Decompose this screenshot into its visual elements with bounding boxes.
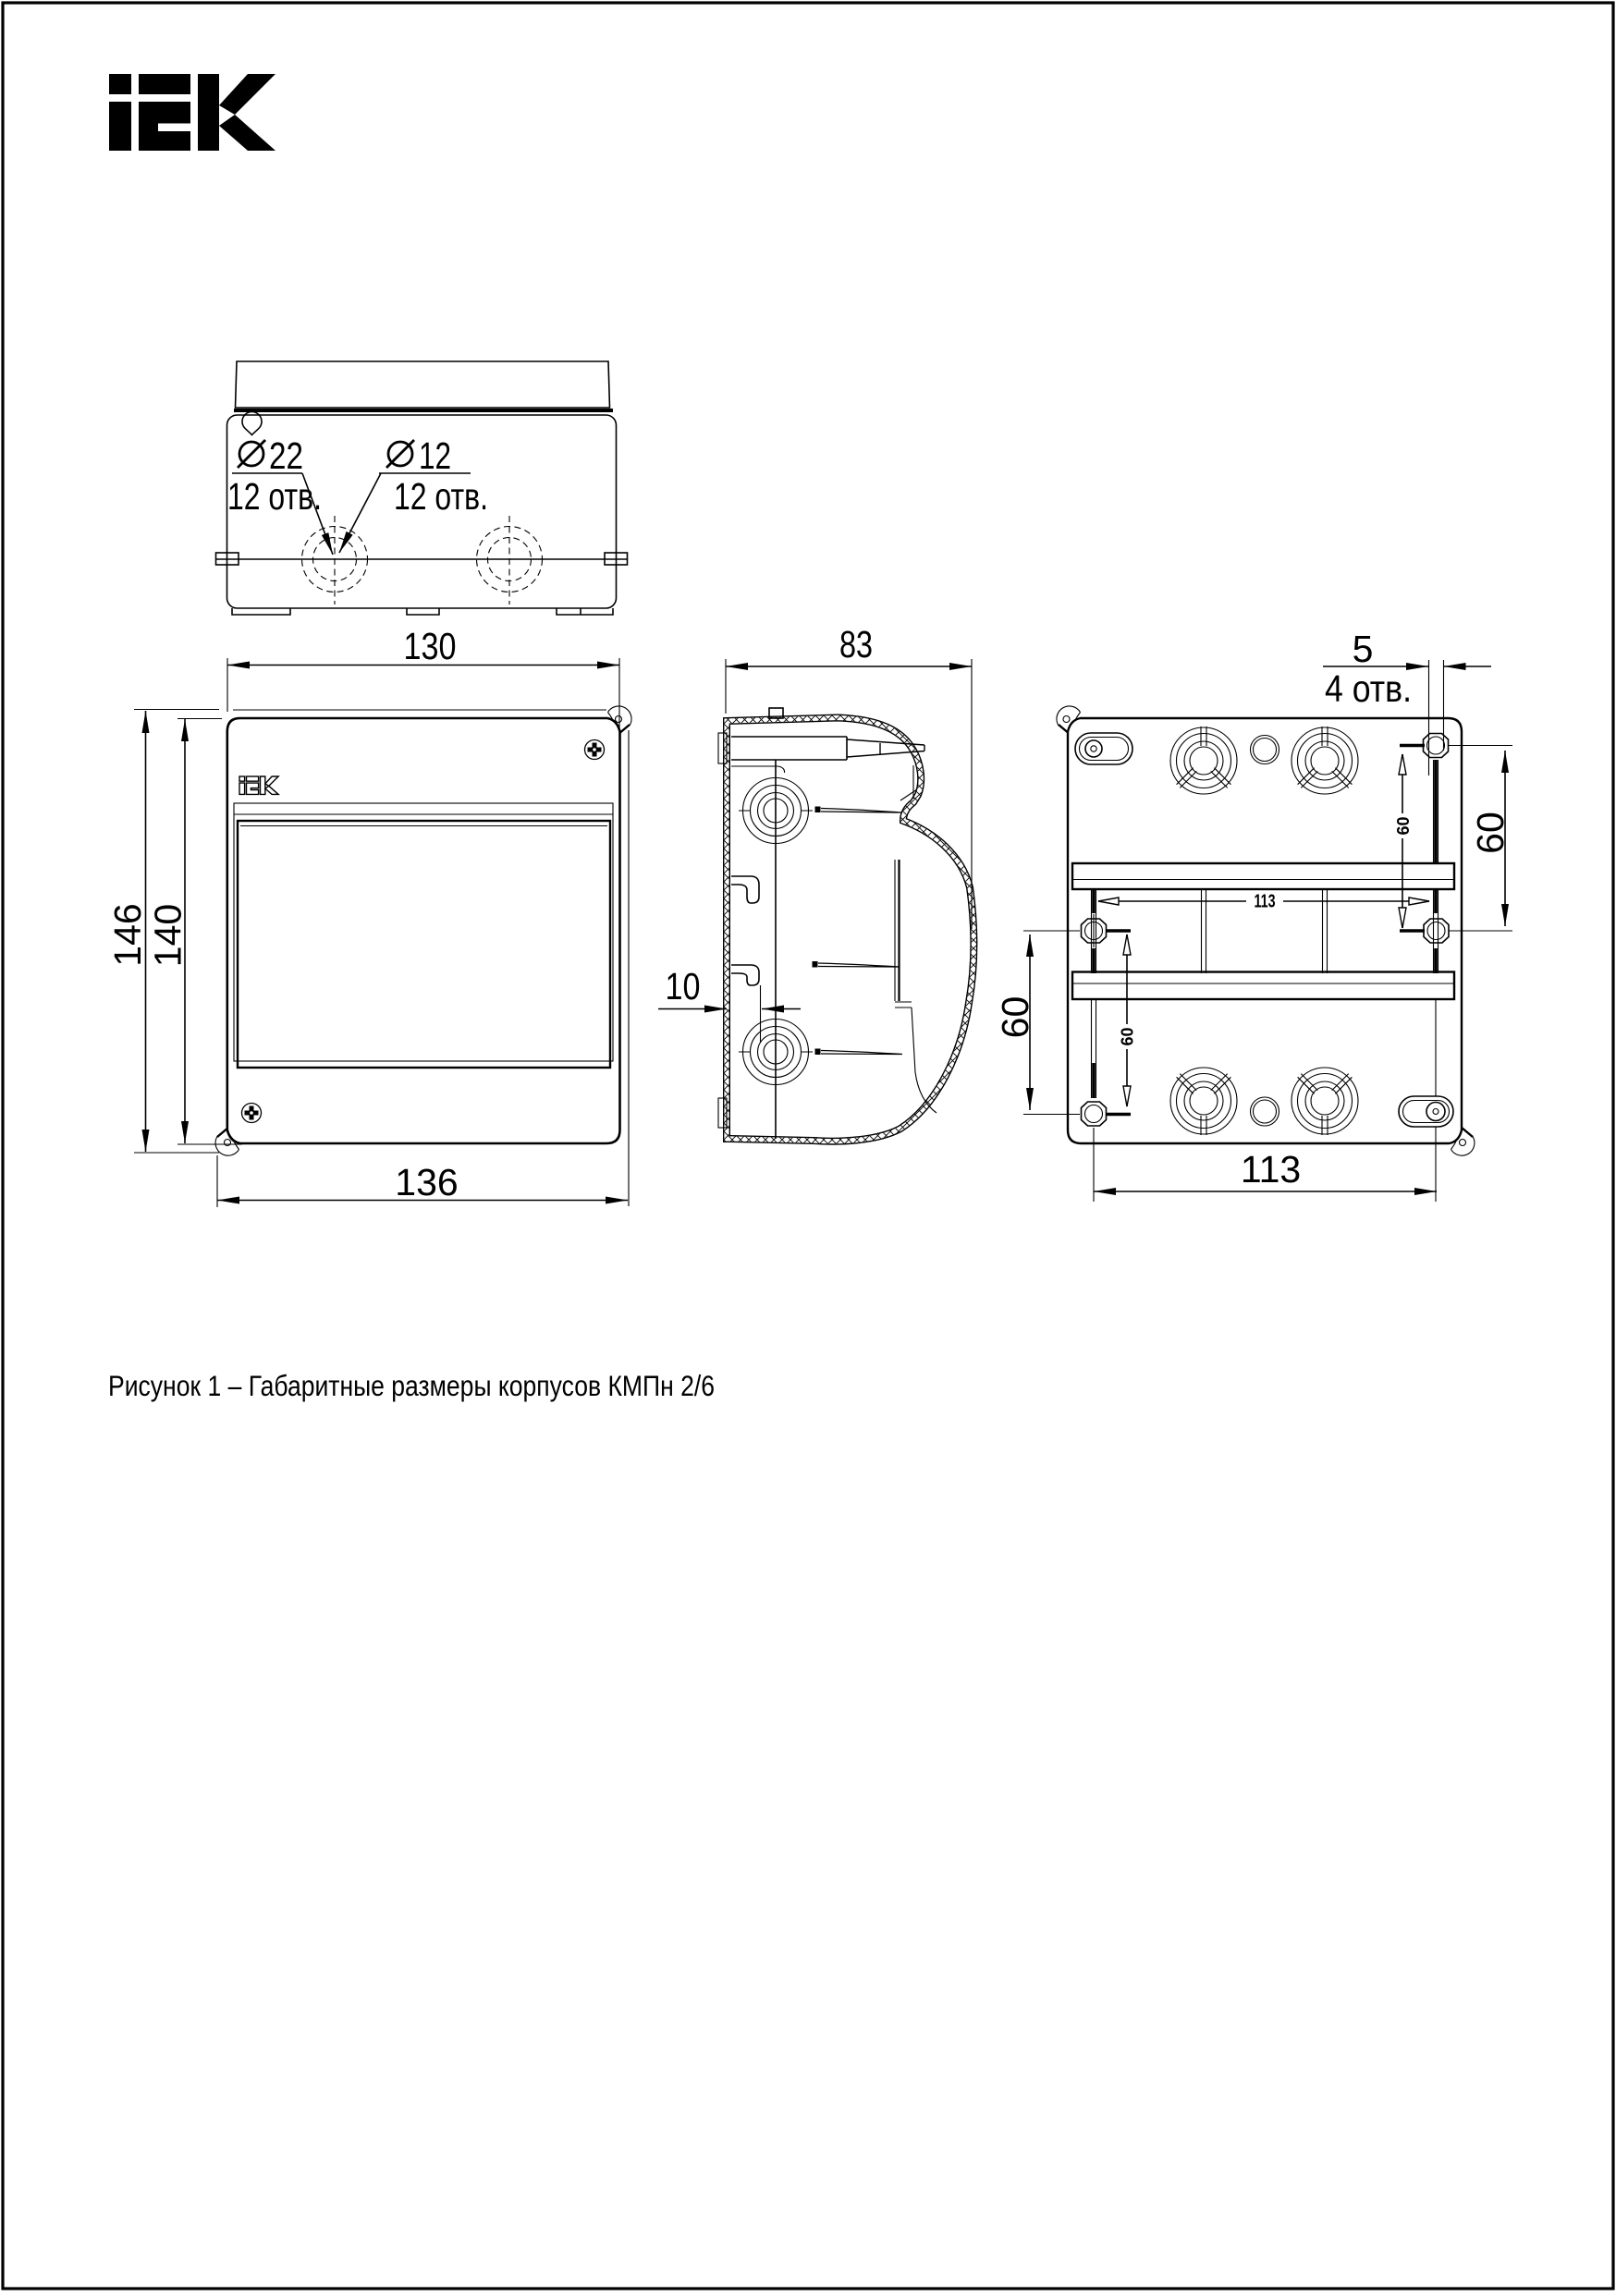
svg-text:Рисунок 1 – Габаритные размеры: Рисунок 1 – Габаритные размеры корпусов … [108, 1369, 715, 1402]
svg-text:4 отв.: 4 отв. [1325, 667, 1412, 710]
svg-text:12: 12 [419, 434, 451, 477]
svg-text:113: 113 [1241, 1148, 1301, 1191]
svg-text:146: 146 [106, 903, 149, 966]
svg-text:12 отв.: 12 отв. [227, 475, 322, 518]
svg-text:140: 140 [147, 904, 190, 967]
svg-text:83: 83 [839, 623, 873, 666]
svg-text:12 отв.: 12 отв. [394, 475, 488, 518]
svg-text:60: 60 [994, 996, 1036, 1039]
svg-text:113: 113 [1255, 892, 1276, 912]
svg-text:22: 22 [269, 434, 303, 477]
svg-text:60: 60 [1469, 812, 1512, 854]
svg-text:5: 5 [1353, 628, 1374, 670]
svg-text:60: 60 [1119, 1028, 1137, 1046]
svg-text:60: 60 [1394, 817, 1413, 836]
svg-text:10: 10 [666, 965, 701, 1008]
svg-text:130: 130 [404, 625, 457, 667]
svg-text:136: 136 [395, 1161, 458, 1203]
